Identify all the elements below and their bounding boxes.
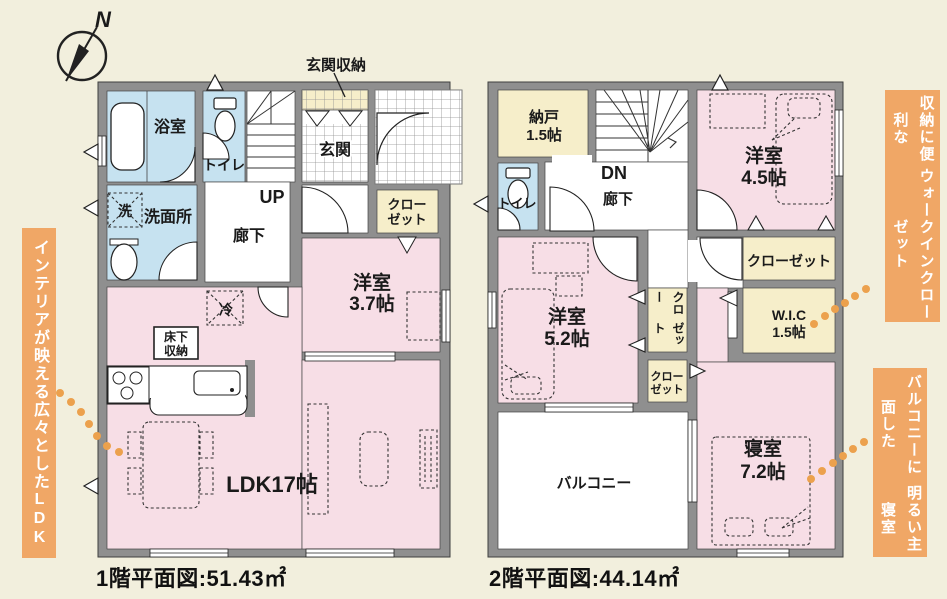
- banner-wic-col2: ウォークインクローゼット: [887, 167, 939, 322]
- washbasin: [111, 244, 137, 280]
- porch-tiles: [375, 90, 462, 184]
- label-washroom: 洗面所: [144, 207, 192, 226]
- label-closet-2f: クローゼット: [747, 253, 831, 269]
- label-western45-name: 洋室: [745, 144, 783, 167]
- label-entrance-storage: 玄関収納: [306, 56, 366, 74]
- label-western37-name: 洋室: [353, 271, 391, 294]
- label-storeroom-size: 1.5帖: [526, 126, 562, 144]
- label-entrance: 玄関: [319, 140, 351, 159]
- label-closet-small-l2: ゼット: [651, 382, 684, 396]
- banner-wic-col1: 収納に便利な: [887, 90, 939, 167]
- room-ldk-west: [107, 287, 302, 549]
- floorplan-drawing: N: [0, 0, 947, 599]
- banner-ldk-text: インテリアが映える広々としたLDK: [22, 239, 56, 548]
- entrance-storage-tiles: [302, 90, 368, 110]
- toilet1f-bowl: [215, 111, 235, 141]
- label-toilet-2f: トイレ: [497, 196, 536, 211]
- label-hallway-2f: 廊下: [603, 190, 633, 208]
- label-wic-name: W.I.C: [772, 307, 806, 323]
- label-fridge: 冷: [219, 302, 233, 318]
- label-bedroom-name: 寝室: [744, 437, 782, 460]
- floorplan-canvas: N: [0, 0, 947, 599]
- label-hallway-1f: 廊下: [233, 226, 265, 245]
- label-toilet-1f: トイレ: [203, 157, 245, 173]
- banner-bedroom: バルコニーに面した 明るい主寝室: [873, 368, 927, 557]
- label-washer: 洗: [118, 203, 132, 219]
- storeroom-door-opening: [552, 155, 592, 165]
- toilet1f-tank: [214, 98, 236, 109]
- compass-north-label: N: [95, 7, 112, 32]
- label-stairs-up: UP: [259, 187, 284, 207]
- banner-bedroom-col2: 明るい主寝室: [874, 481, 926, 557]
- label-closet-vertical-col1: クロー: [647, 291, 687, 322]
- label-underfloor-l1: 床下: [164, 329, 188, 344]
- label-wic-size: 1.5帖: [772, 324, 805, 340]
- label-bath: 浴室: [154, 117, 186, 136]
- bathtub: [111, 103, 144, 170]
- toilet2f-tank: [506, 168, 530, 178]
- label-western52-name: 洋室: [548, 305, 586, 328]
- label-storeroom-name: 納戸: [529, 108, 559, 126]
- label-closet-small-l1: クロー: [651, 370, 684, 383]
- bedroom-entry-opening: [688, 240, 698, 282]
- label-stairs-dn: DN: [601, 163, 627, 183]
- label-balcony: バルコニー: [557, 475, 632, 492]
- label-ldk: LDK17帖: [226, 472, 318, 497]
- banner-bedroom-col1: バルコニーに面した: [874, 368, 926, 481]
- floor2-title: 2階平面図:44.14㎡: [489, 561, 680, 593]
- hallway-2f-south: [648, 230, 688, 288]
- label-western52-size: 5.2帖: [544, 327, 589, 350]
- floor1-plan: 浴室 トイレ UP 洗面所 洗 廊下 玄関 玄関収納 クロー ゼット 洋室 3.…: [84, 56, 462, 557]
- label-underfloor-l2: 収納: [164, 343, 188, 358]
- label-bedroom-size: 7.2帖: [740, 460, 785, 483]
- room-ldk-east: [302, 360, 440, 549]
- label-closet-1f-l2: ゼット: [387, 212, 426, 227]
- label-closet-vertical: クロー ゼット: [647, 291, 687, 353]
- label-closet-1f-l1: クロー: [387, 197, 426, 212]
- banner-ldk: インテリアが映える広々としたLDK: [22, 228, 56, 558]
- stove: [108, 367, 149, 403]
- label-western37-size: 3.7帖: [349, 292, 394, 315]
- floor1-title: 1階平面図:51.43㎡: [96, 561, 287, 593]
- compass-icon: N: [58, 7, 112, 81]
- banner-wic: 収納に便利な ウォークインクローゼット: [885, 90, 940, 322]
- label-western45-size: 4.5帖: [741, 166, 786, 189]
- label-closet-vertical-col2: ゼット: [647, 322, 687, 353]
